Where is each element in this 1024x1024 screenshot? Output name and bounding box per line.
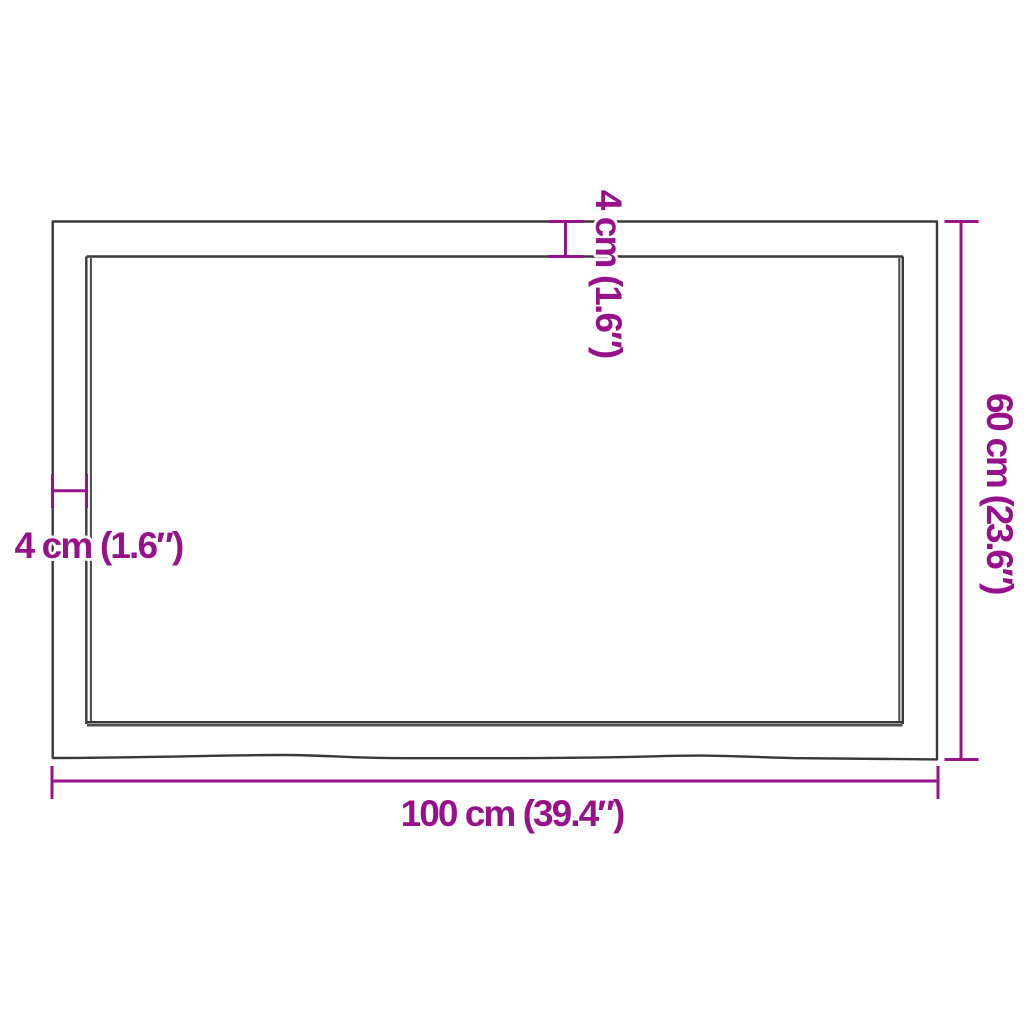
svg-text:4 cm (1.6″): 4 cm (1.6″) (588, 190, 629, 358)
svg-text:60 cm (23.6″): 60 cm (23.6″) (979, 393, 1020, 594)
svg-text:4 cm (1.6″): 4 cm (1.6″) (14, 525, 183, 566)
svg-text:100 cm (39.4″): 100 cm (39.4″) (401, 793, 624, 834)
